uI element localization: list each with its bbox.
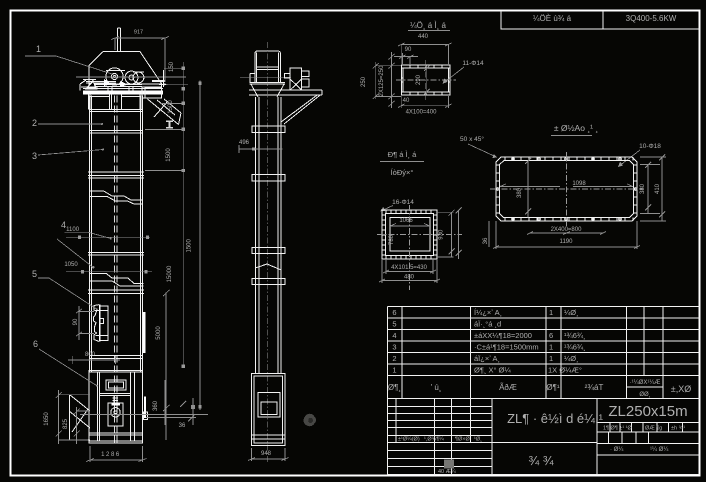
svg-text:480: 480: [404, 275, 415, 281]
svg-text:930: 930: [439, 229, 445, 240]
svg-text:16-Φ14: 16-Φ14: [392, 199, 414, 206]
svg-text:²¾áT: ²¾áT: [585, 383, 604, 392]
svg-text:440: 440: [418, 34, 429, 40]
svg-text:ZL250x15m: ZL250x15m: [608, 403, 687, 420]
svg-text:Ð¶ á Ì¸ á: Ð¶ á Ì¸ á: [388, 150, 417, 159]
svg-text:1650: 1650: [44, 412, 50, 426]
svg-text:1: 1: [549, 343, 553, 352]
svg-text:40: 40: [403, 98, 410, 104]
svg-text:¹¾6¾¸: ¹¾6¾¸: [564, 343, 586, 352]
svg-text:Ø¶¹: Ø¶¹: [546, 383, 560, 392]
svg-text:1X Ø¼Æ°: 1X Ø¼Æ°: [548, 366, 582, 375]
svg-text:Í¼¿×ʼ A¸: Í¼¿×ʼ A¸: [474, 308, 502, 317]
svg-text:¼ÖÈ ù¾ á: ¼ÖÈ ù¾ á: [533, 14, 572, 23]
svg-text:' ú¸: ' ú¸: [431, 383, 442, 392]
svg-text:1100: 1100: [66, 227, 80, 233]
svg-text:¹,Ø¾¶¼: ¹,Ø¾¶¼: [424, 437, 444, 443]
svg-text:2X125=250: 2X125=250: [379, 65, 385, 97]
svg-text:4X100=400: 4X100=400: [406, 110, 438, 116]
svg-text:800: 800: [85, 352, 96, 358]
svg-text:·¹¼ØX¹¼Æ: ·¹¼ØX¹¼Æ: [630, 380, 661, 386]
svg-text:825: 825: [63, 418, 69, 429]
svg-text:± Ø½Ao ¸¹ ¸: ± Ø½Ao ¸¹ ¸: [554, 123, 598, 133]
svg-text:5000: 5000: [156, 326, 162, 340]
svg-text:ÃðÆ: ÃðÆ: [499, 383, 517, 392]
svg-text:3: 3: [392, 343, 396, 352]
svg-text:áÏ·¸°á ¸d: áÏ·¸°á ¸d: [474, 320, 501, 329]
svg-text:5: 5: [32, 269, 37, 279]
svg-text:1: 1: [549, 308, 553, 317]
svg-text:¶Ø×Ø: ¶Ø×Ø: [455, 437, 470, 443]
svg-text:4X101.5=430: 4X101.5=430: [391, 265, 428, 271]
svg-text:ZL¶ · ê½ì d é¼.¹: ZL¶ · ê½ì d é¼.¹: [507, 411, 604, 426]
svg-text:1066: 1066: [399, 218, 413, 224]
svg-text:¹¾6¾¸: ¹¾6¾¸: [564, 331, 586, 340]
svg-text:±¹Ø¼(Ø): ±¹Ø¼(Ø): [398, 437, 420, 443]
svg-text:6: 6: [33, 339, 38, 349]
svg-text:1500: 1500: [186, 238, 192, 252]
svg-text:380: 380: [640, 183, 646, 194]
svg-text:1: 1: [392, 366, 396, 375]
svg-text:50 x 45°: 50 x 45°: [460, 135, 484, 143]
svg-text:90: 90: [73, 318, 79, 325]
svg-text:±áXX¼¶18=2000: ±áXX¼¶18=2000: [474, 331, 532, 340]
svg-text:1500: 1500: [166, 148, 172, 162]
svg-text:·C±á¹¶18=1500mm: ·C±á¹¶18=1500mm: [474, 343, 539, 352]
svg-text:4: 4: [392, 331, 396, 340]
svg-text:290: 290: [416, 74, 422, 85]
svg-text:¹Ø¸: ¹Ø¸: [474, 437, 482, 443]
svg-text:90: 90: [405, 47, 412, 53]
svg-text:36: 36: [483, 237, 489, 244]
svg-text:1: 1: [36, 44, 41, 54]
svg-text:36: 36: [179, 423, 186, 429]
svg-text:1286: 1286: [101, 452, 121, 458]
svg-text:Ø¶¸: Ø¶¸: [388, 383, 401, 392]
svg-text:496: 496: [239, 140, 250, 146]
svg-text:2: 2: [32, 118, 37, 128]
svg-text:Ø¶¸ X° Ø¼: Ø¶¸ X° Ø¼: [474, 366, 511, 375]
svg-text:1050: 1050: [64, 262, 78, 268]
svg-text:±h ¾¹: ±h ¾¹: [671, 426, 685, 432]
svg-text:380: 380: [517, 187, 523, 198]
svg-text:1190: 1190: [560, 239, 574, 245]
svg-text:ØÆ ¶g: ØÆ ¶g: [645, 426, 662, 432]
svg-text:¹¼ Ø¼: ¹¼ Ø¼: [650, 447, 669, 453]
svg-text:40 Æ¼: 40 Æ¼: [438, 469, 456, 475]
svg-text:917: 917: [134, 30, 143, 36]
svg-text:360: 360: [153, 400, 159, 411]
svg-text:15000: 15000: [167, 265, 173, 282]
svg-text:· Ø¼: · Ø¼: [610, 447, 624, 453]
svg-text:948: 948: [261, 451, 272, 457]
svg-text:1: 1: [549, 354, 553, 363]
svg-text:±,XØ: ±,XØ: [671, 384, 691, 394]
svg-text:1¶ Ø¶ ±¹ ¹Ø: 1¶ Ø¶ ±¹ ¹Ø: [603, 426, 633, 432]
svg-text:3: 3: [32, 151, 37, 161]
svg-text:10-Φ18: 10-Φ18: [639, 143, 661, 150]
svg-text:áÏ¿×ʼ A¸: áÏ¿×ʼ A¸: [474, 354, 500, 363]
svg-text:250: 250: [361, 76, 367, 87]
svg-text:2X400=800: 2X400=800: [551, 227, 583, 233]
svg-text:6: 6: [392, 308, 396, 317]
svg-text:ÍòÐý×°: ÍòÐý×°: [391, 168, 414, 177]
svg-text:5: 5: [392, 320, 396, 329]
svg-text:¼Ø¸: ¼Ø¸: [564, 308, 579, 317]
svg-text:ØØ¸: ØØ¸: [639, 392, 650, 398]
svg-text:6: 6: [549, 331, 553, 340]
svg-text:2: 2: [392, 354, 396, 363]
svg-text:780: 780: [389, 234, 395, 245]
svg-text:410: 410: [655, 183, 661, 194]
svg-text:11-Φ14: 11-Φ14: [462, 60, 484, 67]
svg-text:¼Ø¸: ¼Ø¸: [564, 354, 579, 363]
svg-text:1500: 1500: [168, 100, 174, 114]
svg-text:3Q400-5.6KW: 3Q400-5.6KW: [626, 14, 677, 23]
svg-text:¾ ¾: ¾ ¾: [528, 453, 553, 468]
svg-text:¼Ö¸ á Ì¸ á: ¼Ö¸ á Ì¸ á: [410, 21, 447, 30]
svg-text:150: 150: [169, 61, 175, 72]
